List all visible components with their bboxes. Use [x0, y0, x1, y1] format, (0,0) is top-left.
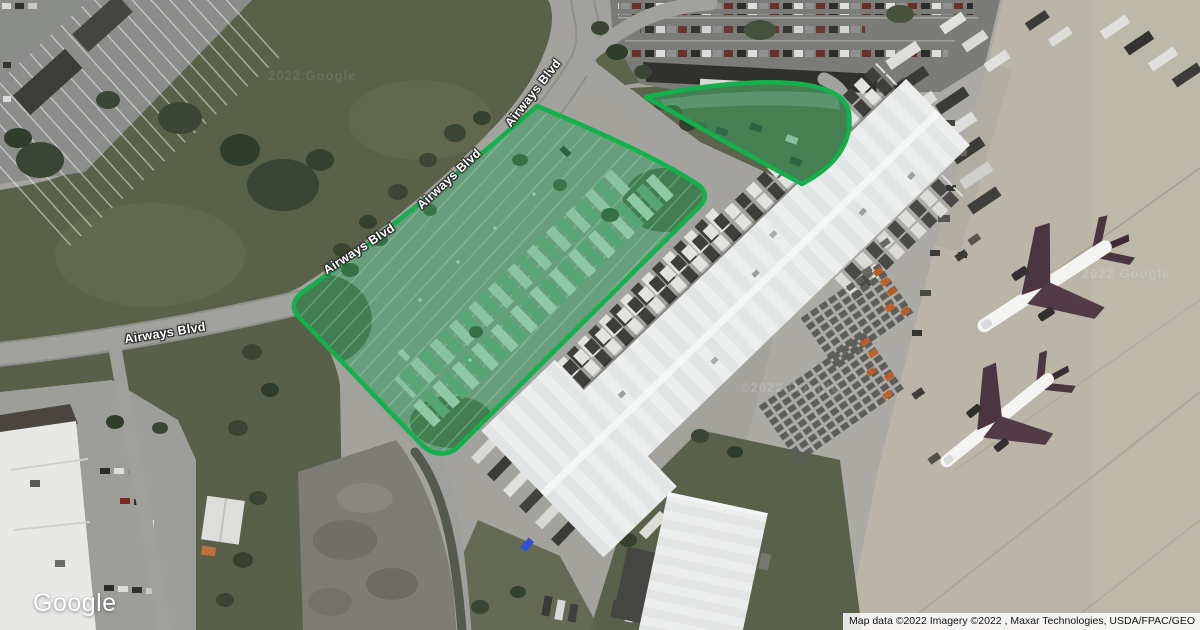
satellite-imagery [0, 0, 1200, 630]
map-attribution: Map data ©2022 Imagery ©2022 , Maxar Tec… [843, 613, 1200, 630]
satellite-map-canvas[interactable]: Airways Blvd Airways Blvd Airways Blvd A… [0, 0, 1200, 630]
google-logo[interactable]: Google [33, 589, 117, 618]
